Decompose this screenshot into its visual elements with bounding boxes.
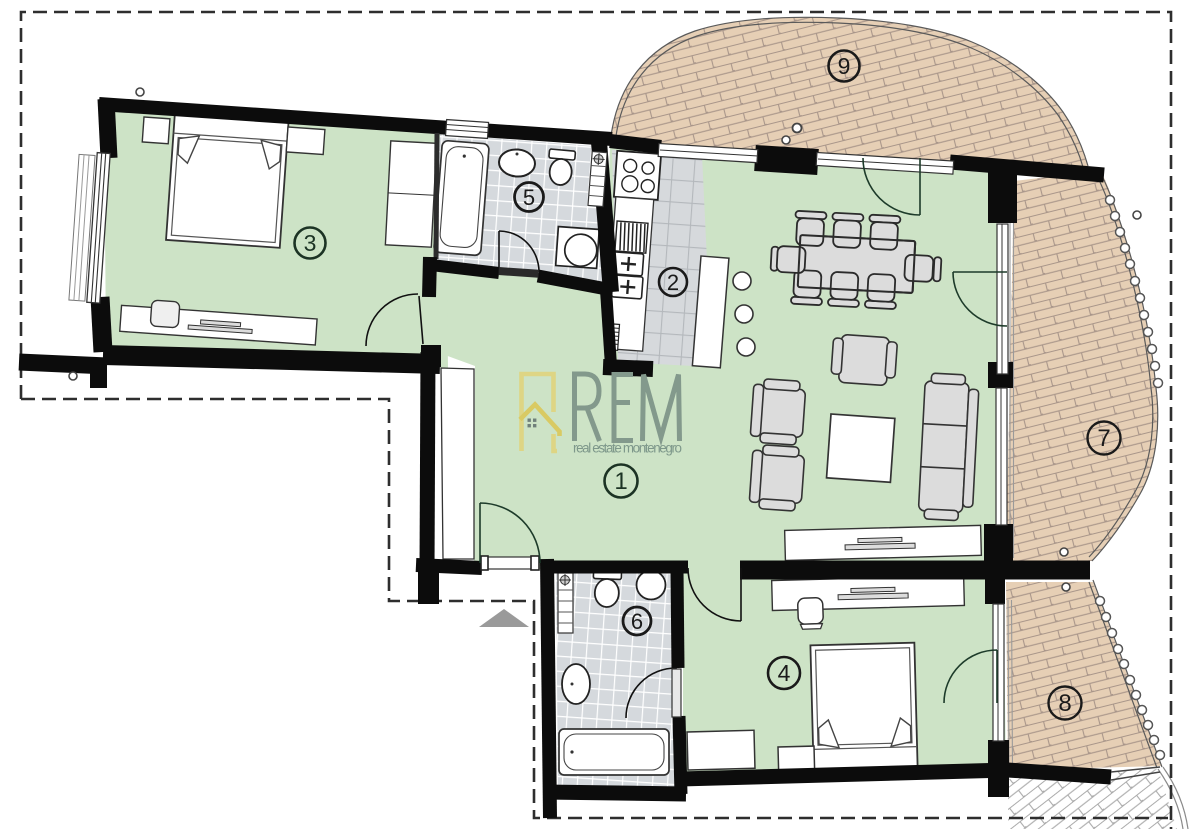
svg-text:1: 1 <box>614 468 627 495</box>
svg-text:5: 5 <box>523 185 535 210</box>
svg-text:real estate montenegro: real estate montenegro <box>573 441 682 456</box>
svg-text:9: 9 <box>838 53 851 79</box>
svg-text:6: 6 <box>631 609 643 634</box>
svg-text:7: 7 <box>1097 425 1110 452</box>
svg-text:3: 3 <box>304 230 317 256</box>
svg-text:8: 8 <box>1058 690 1071 717</box>
svg-text:4: 4 <box>778 660 791 686</box>
svg-text:2: 2 <box>667 270 679 295</box>
